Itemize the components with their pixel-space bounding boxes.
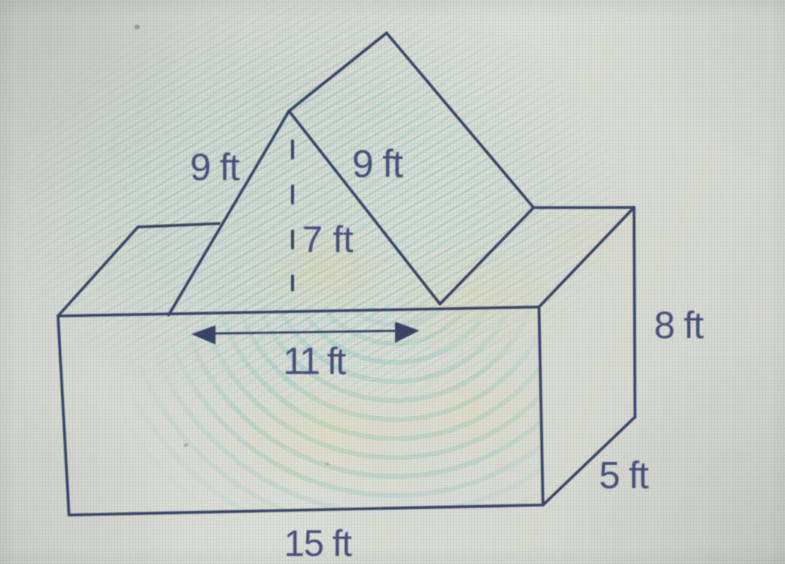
svg-text:9 ft: 9 ft [352,143,403,186]
svg-text:9 ft: 9 ft [190,147,240,189]
svg-text:8 ft: 8 ft [654,305,704,347]
svg-text:15 ft: 15 ft [284,523,353,564]
svg-text:5 ft: 5 ft [599,455,649,497]
svg-text:7 ft: 7 ft [302,219,354,260]
svg-text:11 ft: 11 ft [283,341,347,383]
